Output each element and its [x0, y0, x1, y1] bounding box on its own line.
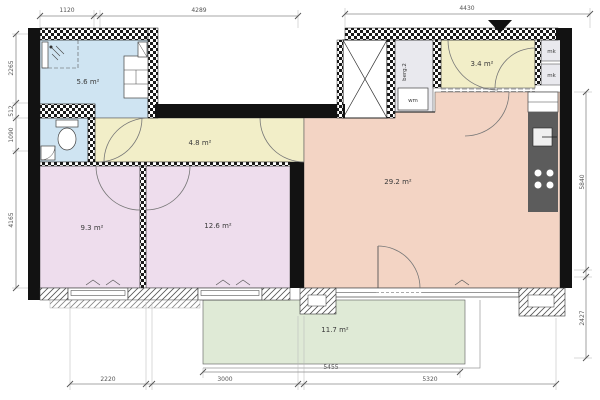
terrace: [203, 300, 480, 368]
wall-left: [28, 28, 40, 300]
wall-shaft-right: [387, 40, 395, 118]
dim-bottom-1: 2220: [100, 376, 115, 383]
wall-shaft-left: [337, 40, 343, 118]
pier-left: [300, 288, 336, 314]
dim-right-1: 5840: [579, 174, 586, 189]
dim-top-1: 1120: [59, 7, 74, 14]
wall-bedroom-divider: [140, 166, 146, 288]
kitchen-block: [528, 92, 558, 212]
wall-void-bottom: [155, 104, 345, 118]
wall-right: [560, 28, 572, 288]
wall-bedroom-living: [290, 162, 304, 288]
room-living-label: 29.2 m²: [384, 178, 412, 186]
room-storage-label: berg.2: [402, 63, 408, 81]
wall-bottom-seg1: [40, 288, 68, 300]
floor-plan-page: 5.6 m² 4.8 m² 3.4 m² 9.3 m² 12.6 m² 29.2…: [0, 0, 600, 400]
room-entrance-label: 3.4 m²: [471, 60, 494, 68]
dim-top-2: 4289: [191, 7, 206, 14]
room-bedroom-right-label: 12.6 m²: [204, 222, 232, 230]
wall-wc-hall: [88, 118, 95, 162]
mk-bottom-label: mk: [547, 73, 556, 79]
dim-right-2: 2427: [579, 310, 586, 325]
kitchen-counter: [528, 112, 558, 212]
room-terrace-label: 11.7 m²: [321, 326, 349, 334]
room-bedroom-left-label: 9.3 m²: [81, 224, 104, 232]
dim-left-1: 2265: [8, 60, 15, 75]
dim-bottom-terrace: 5455: [323, 364, 338, 371]
floor-plan-drawing: 5.6 m² 4.8 m² 3.4 m² 9.3 m² 12.6 m² 29.2…: [0, 0, 600, 400]
wall-bottom-seg3: [262, 288, 290, 300]
wall-top-right-wing: [345, 28, 558, 40]
wall-bath-wc: [40, 104, 95, 118]
room-bathroom-label: 5.6 m²: [77, 78, 100, 86]
washing-machine-label: wm: [408, 98, 418, 104]
wall-bottom-seg2: [128, 288, 198, 300]
wall-top-left-wing: [40, 28, 148, 40]
corner-basin-icon: [41, 146, 55, 160]
radiator-icon: [138, 42, 147, 57]
room-living-kitchen: [304, 92, 560, 288]
room-hall-label: 4.8 m²: [189, 139, 212, 147]
vanity-icon: [124, 56, 148, 98]
dim-bottom-2: 3000: [217, 376, 232, 383]
dim-left-2: 512: [8, 105, 15, 117]
mk-top-label: mk: [547, 49, 556, 55]
wall-storage-entrance: [433, 40, 441, 88]
pier-right: [519, 288, 565, 316]
dim-left-3: 1090: [8, 127, 15, 142]
dim-top-3: 4430: [459, 5, 474, 12]
dim-left-4: 4165: [8, 212, 15, 227]
shaft-cross: [343, 40, 387, 118]
balcony-ledge: [50, 300, 200, 308]
wall-entrance-mk: [535, 40, 541, 85]
dim-bottom-3: 5320: [422, 376, 437, 383]
wall-hall-bedrooms: [40, 162, 290, 166]
